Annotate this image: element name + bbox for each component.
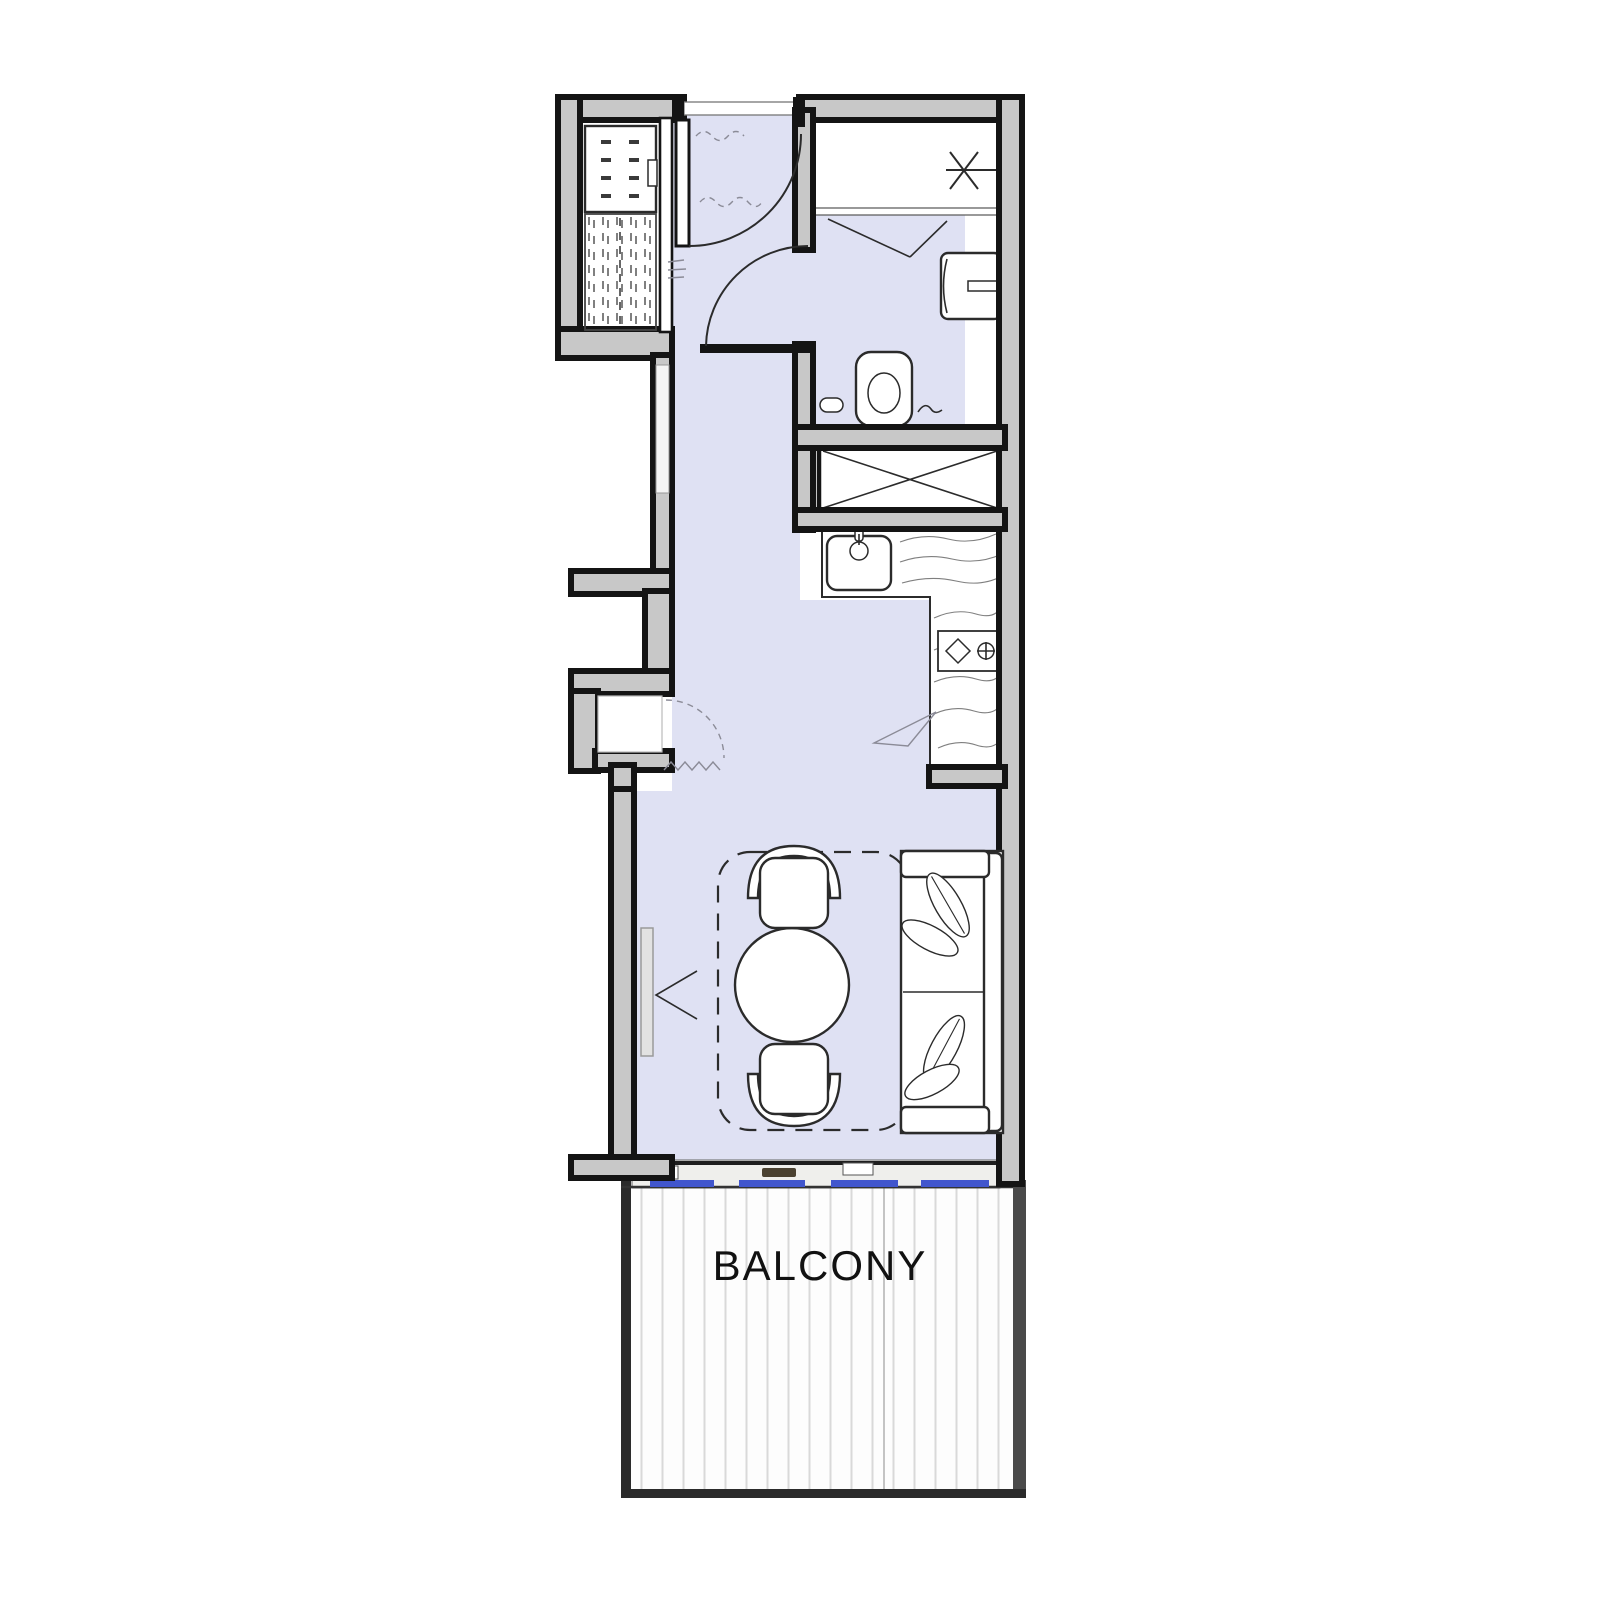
wardrobe-handle — [648, 160, 657, 186]
balcony-frame-right — [1013, 1180, 1026, 1498]
wardrobe-upper-cabinet — [585, 126, 656, 212]
wall-bath-washer — [795, 427, 1005, 448]
entry-jamb-right — [793, 97, 805, 127]
shower-glass-partition — [812, 208, 1002, 215]
bathroom-sink-icon — [941, 253, 1002, 319]
window-icon — [946, 152, 1004, 189]
tv-screen — [641, 928, 653, 1056]
door-track-cap-mid — [843, 1163, 873, 1175]
sofa-armrest-top — [901, 851, 989, 877]
wall-living-left-cap — [571, 1157, 672, 1178]
wall-exterior-left-top — [558, 97, 580, 349]
dining-chair-top — [748, 846, 840, 928]
wall-hall-bath-upper — [795, 110, 813, 250]
wall-counter-stub — [929, 767, 1005, 786]
toilet-paper-icon — [820, 398, 843, 412]
floor-plan-drawing: BALCONY — [0, 0, 1600, 1600]
wall-top-right — [799, 97, 1009, 120]
wardrobe-hanging-area — [585, 214, 656, 330]
window-left-inset — [656, 365, 669, 493]
balcony-frame-left — [621, 1180, 631, 1498]
dining-table — [735, 928, 849, 1042]
glass-pane-4 — [921, 1180, 989, 1187]
dining-chair-bottom — [748, 1044, 840, 1126]
sliding-glass-door — [621, 1160, 1013, 1188]
glass-pane-3 — [831, 1180, 898, 1187]
wall-living-left — [611, 789, 634, 1163]
wall-left-mid — [645, 591, 672, 679]
balcony-label: BALCONY — [713, 1242, 928, 1289]
cooktop-icon — [938, 631, 1002, 671]
entry-threshold — [684, 102, 794, 115]
entry-door-leaf — [676, 120, 689, 246]
glass-pane-2 — [739, 1180, 805, 1187]
balcony — [621, 1180, 1026, 1498]
toilet-icon — [856, 352, 912, 433]
niche-box — [598, 696, 662, 752]
door-handle — [762, 1168, 796, 1177]
bathroom-door-leaf — [700, 344, 810, 353]
wardrobe — [585, 126, 657, 330]
washer-closet — [819, 447, 1001, 512]
sofa — [897, 851, 1003, 1133]
glass-pane-1 — [650, 1180, 714, 1187]
bathroom-door-gap-floor — [797, 250, 813, 344]
balcony-frame-bottom — [621, 1489, 1026, 1498]
wall-closet-right-partition — [660, 118, 672, 332]
sofa-backrest — [984, 853, 1002, 1131]
wall-washer-kitchen — [795, 510, 1005, 529]
floor-plan-page: BALCONY — [0, 0, 1600, 1600]
sofa-armrest-bottom — [901, 1107, 989, 1133]
balcony-deck-stripes — [631, 1188, 1013, 1489]
